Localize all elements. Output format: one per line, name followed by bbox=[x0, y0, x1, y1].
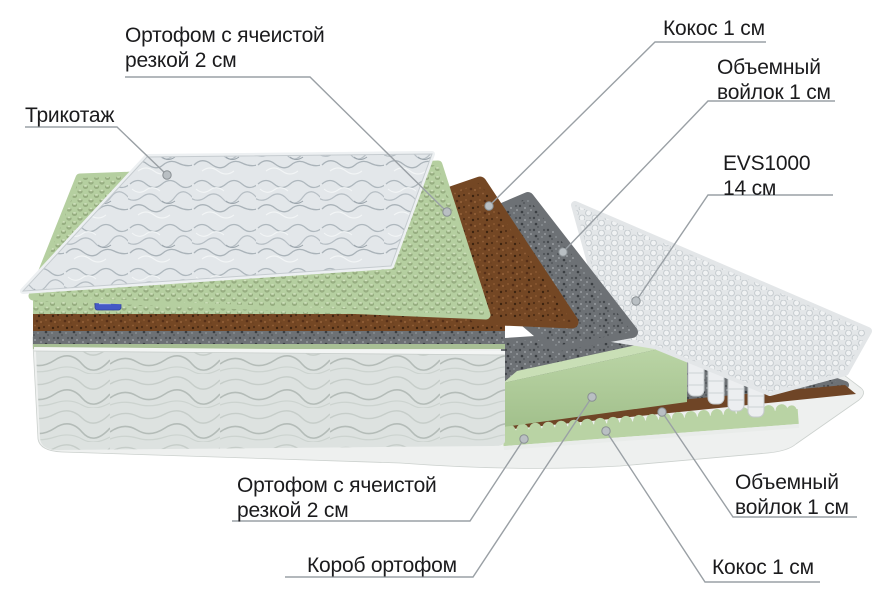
side-felt-band bbox=[33, 331, 505, 344]
dot-felt-top bbox=[559, 248, 567, 256]
label-orthofoam-top: Ортофом с ячеистой резкой 2 см bbox=[125, 23, 325, 73]
label-line: резкой 2 см bbox=[125, 48, 325, 73]
label-line: Кокос 1 см bbox=[663, 16, 765, 41]
dot-coconut-top bbox=[485, 202, 493, 210]
dot-felt-bottom bbox=[658, 408, 666, 416]
label-line: резкой 2 см bbox=[237, 498, 437, 523]
dot-eggfoam-top bbox=[443, 208, 451, 216]
label-springs: EVS1000 14 см bbox=[723, 151, 810, 201]
label-line: Короб ортофом bbox=[307, 553, 457, 578]
dot-springs bbox=[632, 297, 640, 305]
box-quilted-face bbox=[36, 349, 505, 450]
label-line: Объемный bbox=[735, 470, 849, 495]
label-line: Ортофом с ячеистой bbox=[237, 473, 437, 498]
label-box: Короб ортофом bbox=[307, 553, 457, 578]
label-coconut-bottom: Кокос 1 см bbox=[712, 555, 814, 580]
label-knit: Трикотаж bbox=[25, 103, 114, 128]
label-line: Ортофом с ячеистой bbox=[125, 23, 325, 48]
label-line: войлок 1 см bbox=[717, 80, 831, 105]
label-line: 14 см bbox=[723, 176, 810, 201]
label-felt-top: Объемный войлок 1 см bbox=[717, 55, 831, 105]
label-line: EVS1000 bbox=[723, 151, 810, 176]
dot-knit bbox=[163, 171, 171, 179]
mattress-layers-diagram: Ортофом с ячеистой резкой 2 см Трикотаж … bbox=[0, 0, 874, 599]
dot-eggfoam-bottom bbox=[520, 435, 528, 443]
label-line: войлок 1 см bbox=[735, 495, 849, 520]
label-line: Объемный bbox=[717, 55, 831, 80]
label-orthofoam-bottom: Ортофом с ячеистой резкой 2 см bbox=[237, 473, 437, 523]
label-line: Трикотаж bbox=[25, 103, 114, 128]
dot-box-block bbox=[588, 393, 596, 401]
label-line: Кокос 1 см bbox=[712, 555, 814, 580]
label-felt-bottom: Объемный войлок 1 см bbox=[735, 470, 849, 520]
dot-coconut-bottom bbox=[602, 427, 610, 435]
label-coconut-top: Кокос 1 см bbox=[663, 16, 765, 41]
